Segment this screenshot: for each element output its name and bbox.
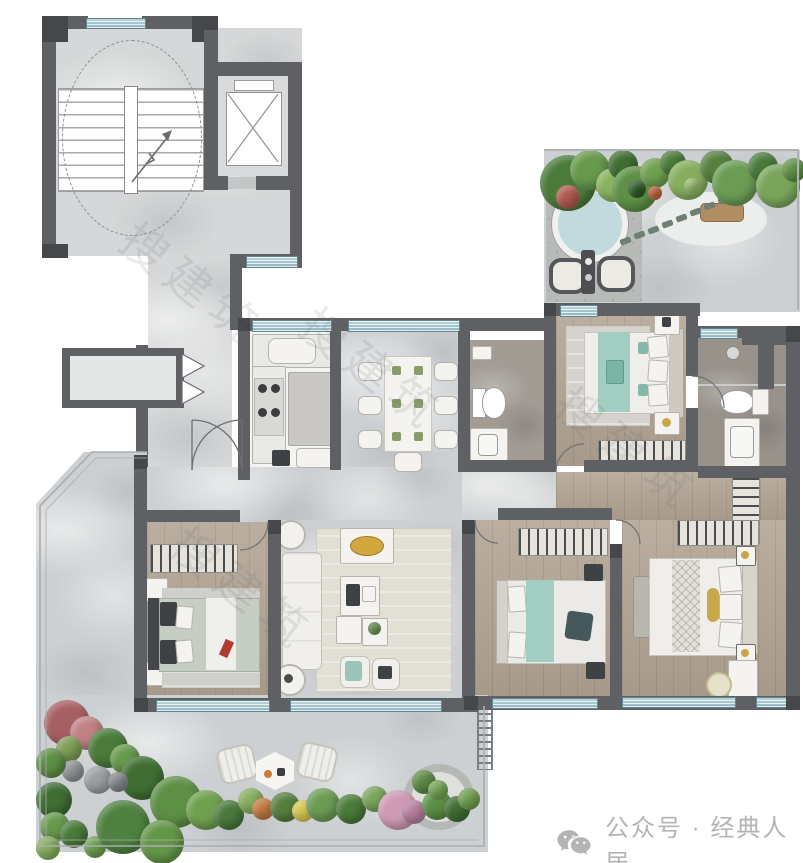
terrace-table-decor (585, 258, 592, 265)
bedroom4-wardrobe (518, 528, 608, 556)
master-window-small (756, 697, 788, 708)
bedroom4-bed-runner (526, 580, 554, 662)
side-terrace-floor (36, 452, 147, 712)
plant-icon (556, 185, 580, 209)
coffee-machine (272, 450, 290, 466)
plant-icon (36, 836, 60, 860)
bedroom2-bed-cushion (606, 360, 624, 384)
bedroom4-pillow (507, 631, 527, 658)
plant-icon (306, 788, 340, 822)
master-closet-horizontal (677, 520, 759, 546)
stairwell-window (86, 18, 146, 29)
shaft-room (62, 348, 184, 408)
bedroom3-pillow-white (175, 605, 194, 629)
bedroom3-pillow-white (175, 639, 194, 663)
account-credit-text: 公众号 · 经典人居 (605, 808, 803, 863)
hob-burner (258, 384, 267, 393)
powder-toilet-bowl (482, 387, 506, 419)
corridor-window (246, 256, 298, 268)
hex-table-book (277, 768, 285, 776)
plant-icon (36, 748, 66, 778)
elevator-cab (226, 92, 282, 166)
ensuite-toilet-bowl (720, 390, 754, 414)
powder-basin (478, 434, 498, 456)
dining-chair (434, 362, 458, 381)
dining-chair (434, 396, 458, 415)
dining-chair (434, 430, 458, 449)
kitchen-sink (268, 338, 316, 364)
dining-placesetting (392, 366, 401, 375)
bedroom3-terrace-window (156, 700, 270, 712)
dining-chair (358, 362, 382, 381)
bedroom2-pillow (647, 383, 668, 406)
nightstand-gold-lamp (741, 551, 749, 559)
powder-shelf (472, 346, 492, 360)
bedroom4-dark-throw (564, 610, 594, 641)
dining-chair (358, 430, 382, 449)
bedroom3-bed-runner (206, 598, 236, 670)
nightstand-decor (662, 418, 671, 427)
accent-chair-cushion (345, 661, 362, 681)
coffee-table-box (362, 586, 376, 602)
dining-chair (358, 396, 382, 415)
ensuite-toilet-tank (752, 389, 769, 415)
side-table-decor (284, 674, 293, 683)
wechat-icon (556, 828, 592, 859)
bath-window (700, 328, 738, 339)
plant-icon (108, 772, 128, 792)
master-gold-bolster (707, 588, 719, 622)
dining-chair (394, 452, 422, 472)
account-credit: 公众号 · 经典人居 (556, 808, 803, 863)
bedroom4-nightstand (584, 564, 603, 581)
elevator-vent (234, 80, 274, 91)
plant-icon (684, 178, 700, 194)
master-window (622, 697, 736, 708)
dining-window (348, 320, 460, 332)
laptop (378, 666, 392, 679)
terrace-railing (477, 706, 493, 770)
nesting-table (336, 616, 362, 644)
ensuite-basin (730, 426, 754, 458)
terrace-table (581, 250, 595, 294)
nightstand-gold-lamp (741, 649, 749, 657)
bedroom4-window (492, 698, 598, 709)
plant-icon (140, 820, 184, 863)
kitchen-island (288, 372, 332, 446)
terrace-armchair (597, 256, 635, 292)
bedroom2-window (560, 305, 598, 317)
bedroom3-headboard (148, 598, 159, 670)
master-headboard (742, 560, 758, 654)
hex-table-cup (264, 770, 272, 778)
plant-icon (628, 180, 646, 198)
master-pillow (718, 565, 743, 593)
bedroom4-nightstand (586, 662, 605, 679)
plant-icon (458, 788, 480, 810)
master-desk-chair (706, 672, 732, 698)
kitchen-window (252, 320, 332, 332)
bedroom2-pillow (647, 335, 669, 359)
floor-plan: 搜建筑 搜建筑 搜建筑 搜建筑 公众号 · 经典人居 (0, 0, 803, 863)
potted-plant (368, 622, 381, 635)
terrace-table-decor (585, 274, 592, 281)
elevator-door (228, 177, 256, 189)
gold-bowl (350, 536, 384, 556)
plant-icon (648, 186, 662, 200)
shower-head (726, 346, 740, 360)
bedroom2-pillow (647, 359, 668, 382)
bedroom3-wardrobe (150, 544, 238, 573)
coffee-table-tray (346, 584, 360, 606)
plant-icon (782, 158, 803, 182)
plant-icon (428, 780, 448, 800)
living-terrace-door (290, 700, 442, 712)
stair-dashed-ellipse (62, 40, 202, 236)
master-desk (728, 660, 758, 700)
master-pillow (719, 594, 742, 620)
fridge (296, 448, 334, 468)
nightstand-lamp (662, 317, 671, 327)
bedroom2-accent-pillow (638, 342, 648, 354)
bedroom4-pillow (507, 585, 527, 612)
bedroom2-headboard (668, 328, 684, 418)
master-bed-pattern (672, 560, 700, 652)
sofa (282, 552, 322, 670)
bedroom3-pillow (160, 602, 177, 626)
